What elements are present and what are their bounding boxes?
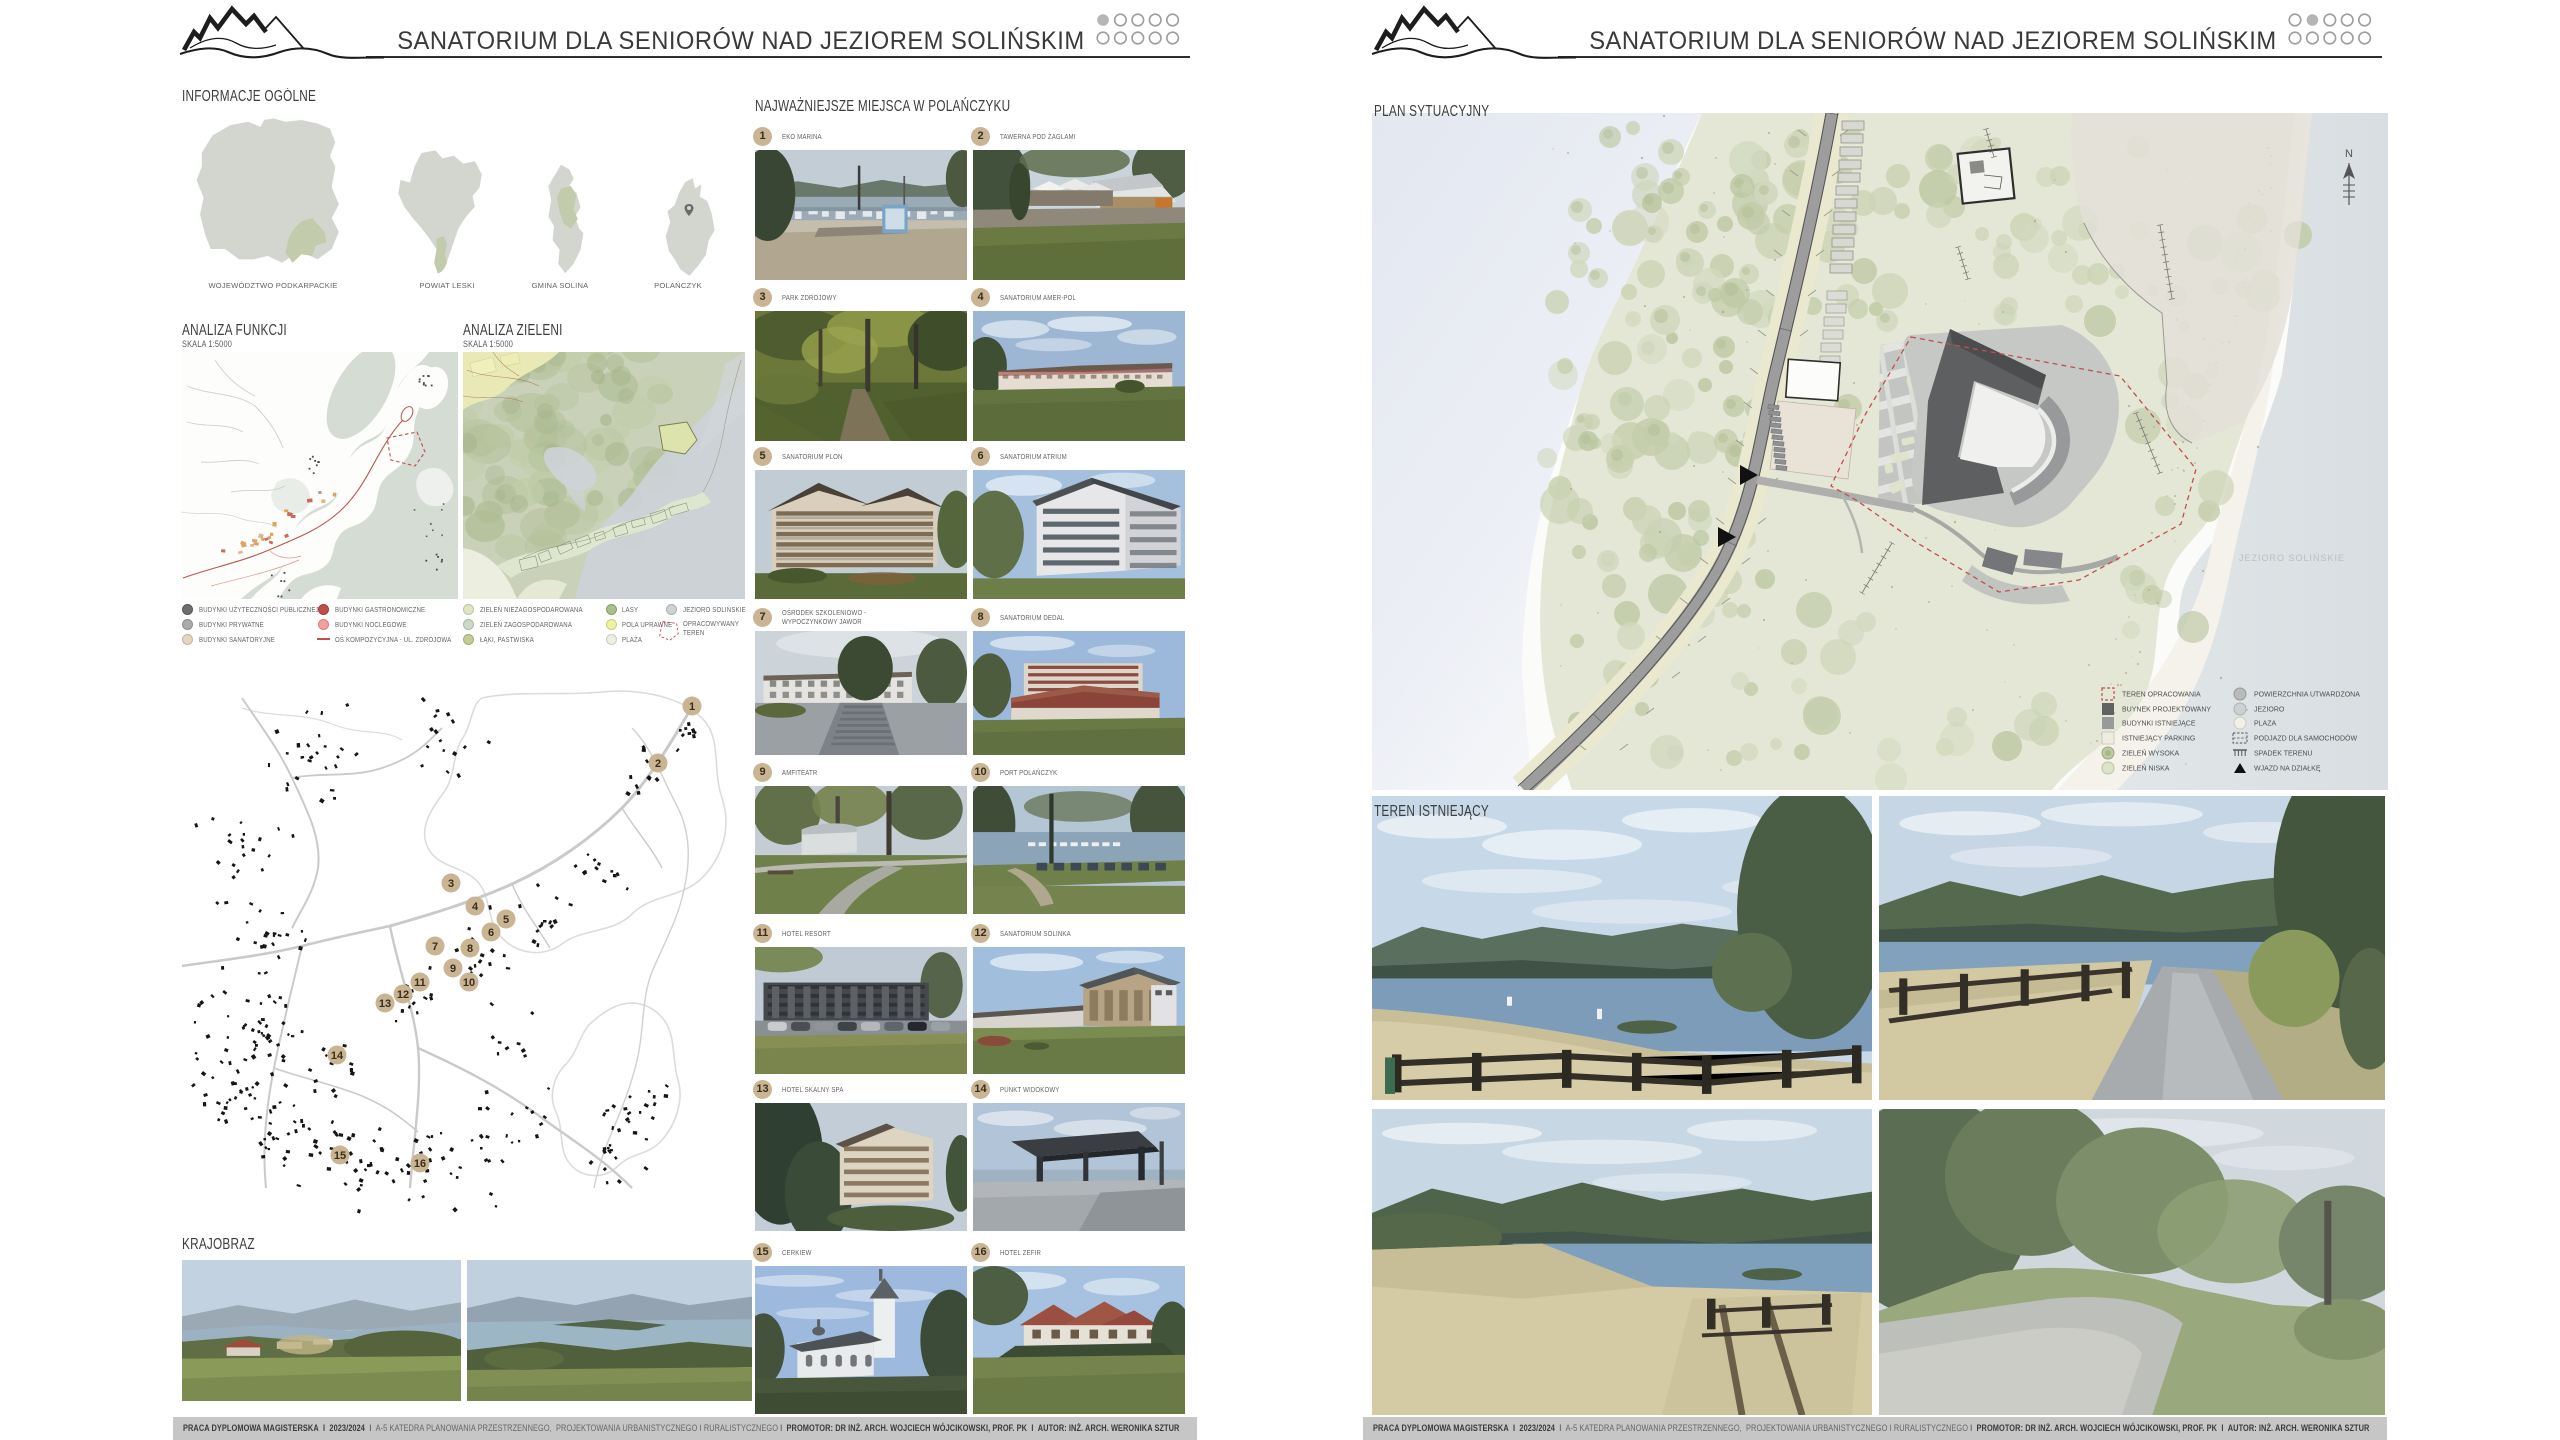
svg-text:9: 9 [450, 963, 456, 975]
svg-text:TEREN OPRACOWANIA: TEREN OPRACOWANIA [2122, 692, 2201, 699]
svg-text:2: 2 [655, 758, 661, 770]
svg-text:ISTNIEJĄCY PARKING: ISTNIEJĄCY PARKING [2122, 736, 2195, 743]
svg-text:JEZIORO: JEZIORO [2254, 707, 2285, 714]
svg-text:BUYNEK PROJEKTOWANY: BUYNEK PROJEKTOWANY [2122, 707, 2211, 714]
svg-text:ZIELEŃ WYSOKA: ZIELEŃ WYSOKA [2122, 749, 2180, 758]
svg-text:11: 11 [414, 977, 426, 989]
svg-text:WJAZD NA DZIAŁKĘ: WJAZD NA DZIAŁKĘ [2254, 766, 2321, 773]
svg-text:10: 10 [463, 977, 475, 989]
svg-text:BUDYNKI ISTNIEJĄCE: BUDYNKI ISTNIEJĄCE [2122, 721, 2196, 728]
svg-text:ZIELEŃ NISKA: ZIELEŃ NISKA [2122, 764, 2170, 773]
svg-text:PODJAZD DLA SAMOCHODÓW: PODJAZD DLA SAMOCHODÓW [2254, 734, 2357, 743]
svg-text:3: 3 [448, 878, 454, 890]
svg-text:16: 16 [414, 1158, 426, 1170]
svg-text:5: 5 [503, 914, 509, 926]
svg-text:4: 4 [472, 901, 479, 913]
svg-text:7: 7 [432, 941, 438, 953]
svg-text:JEZIORO SOLIŃSKIE: JEZIORO SOLIŃSKIE [2239, 553, 2345, 563]
svg-text:POWIERZCHNIA UTWARDZONA: POWIERZCHNIA UTWARDZONA [2254, 692, 2360, 699]
svg-text:12: 12 [397, 989, 409, 1001]
svg-text:PLAZA: PLAZA [2254, 721, 2277, 728]
svg-text:13: 13 [379, 998, 391, 1010]
svg-text:15: 15 [334, 1150, 346, 1162]
svg-text:SPADEK TERENU: SPADEK TERENU [2254, 751, 2312, 758]
svg-text:6: 6 [488, 927, 494, 939]
svg-text:1: 1 [689, 701, 695, 713]
svg-text:8: 8 [467, 943, 473, 955]
svg-text:14: 14 [331, 1050, 344, 1062]
svg-text:N: N [2345, 148, 2353, 160]
